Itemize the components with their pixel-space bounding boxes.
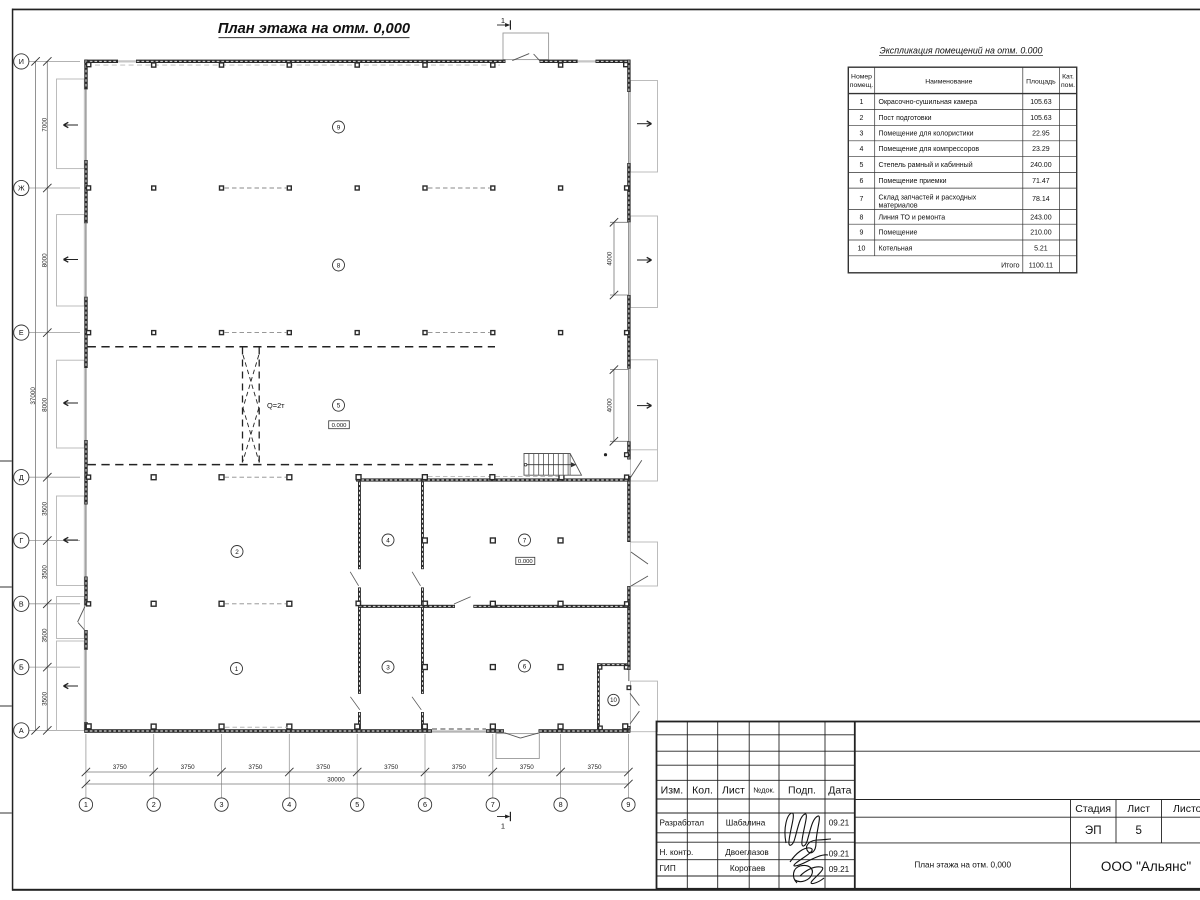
svg-text:78.14: 78.14	[1032, 196, 1050, 203]
svg-text:Степель рамный и кабинный: Степель рамный и кабинный	[879, 161, 973, 169]
svg-text:Котельная: Котельная	[879, 245, 913, 252]
svg-text:Разработал: Разработал	[660, 818, 705, 827]
svg-text:9: 9	[337, 124, 341, 131]
svg-text:Кол.: Кол.	[692, 785, 713, 797]
svg-text:7: 7	[523, 537, 527, 544]
svg-text:Наименование: Наименование	[925, 79, 972, 86]
svg-text:09.21: 09.21	[829, 850, 850, 859]
svg-text:8000: 8000	[42, 253, 49, 268]
svg-text:Помещение приемки: Помещение приемки	[879, 178, 947, 185]
svg-text:71.47: 71.47	[1032, 178, 1050, 185]
svg-text:Пост подготовки: Пост подготовки	[879, 115, 932, 122]
svg-text:Б: Б	[19, 663, 24, 672]
svg-text:9: 9	[860, 230, 864, 237]
svg-text:6: 6	[523, 663, 527, 670]
svg-text:3500: 3500	[42, 501, 49, 516]
svg-text:План этажа на отм. 0,000: План этажа на отм. 0,000	[914, 860, 1011, 869]
svg-text:Стадия: Стадия	[1075, 803, 1111, 815]
svg-text:4000: 4000	[607, 251, 614, 266]
svg-text:3750: 3750	[248, 764, 263, 771]
svg-text:3750: 3750	[181, 764, 196, 771]
svg-text:И: И	[19, 57, 24, 66]
svg-text:6: 6	[423, 800, 427, 809]
svg-text:ЭП: ЭП	[1085, 825, 1102, 837]
svg-text:Д: Д	[19, 473, 24, 482]
svg-text:5: 5	[337, 403, 341, 410]
svg-text:09.21: 09.21	[829, 865, 850, 874]
svg-text:3750: 3750	[113, 764, 128, 771]
svg-text:4000: 4000	[607, 398, 614, 413]
svg-text:10: 10	[610, 698, 617, 704]
svg-text:4: 4	[287, 800, 291, 809]
svg-text:4: 4	[860, 146, 864, 153]
svg-text:23.29: 23.29	[1032, 146, 1050, 153]
svg-text:В: В	[19, 599, 24, 608]
svg-text:Лист: Лист	[1127, 803, 1150, 815]
svg-text:3500: 3500	[42, 565, 49, 580]
svg-text:105.63: 105.63	[1030, 115, 1052, 122]
svg-text:8: 8	[860, 214, 864, 221]
svg-text:Е: Е	[19, 328, 24, 337]
svg-text:План этажа на отм. 0,000: План этажа на отм. 0,000	[218, 21, 411, 37]
svg-text:Помещение для компрессоров: Помещение для компрессоров	[879, 146, 980, 153]
svg-text:Изм.: Изм.	[661, 785, 684, 797]
svg-text:Дата: Дата	[828, 785, 851, 797]
svg-text:9: 9	[626, 800, 630, 809]
svg-text:Итого: Итого	[1001, 262, 1019, 269]
svg-text:ООО "Альянс": ООО "Альянс"	[1101, 859, 1191, 874]
svg-text:№док.: №док.	[753, 786, 774, 795]
svg-text:ГИП: ГИП	[660, 864, 676, 873]
svg-text:Лист: Лист	[722, 785, 745, 797]
svg-text:Ж: Ж	[18, 184, 25, 193]
svg-text:2: 2	[235, 549, 239, 556]
svg-text:Помещение для колористики: Помещение для колористики	[879, 131, 974, 138]
svg-text:Двоеглазов: Двоеглазов	[725, 848, 769, 857]
svg-text:пом.: пом.	[1061, 82, 1075, 89]
svg-text:1: 1	[860, 99, 864, 106]
svg-text:3500: 3500	[42, 628, 49, 643]
svg-text:10: 10	[858, 245, 866, 252]
svg-text:Г: Г	[19, 536, 23, 545]
svg-text:5: 5	[860, 162, 864, 169]
svg-text:7: 7	[491, 800, 495, 809]
svg-text:7000: 7000	[42, 117, 49, 132]
svg-text:5: 5	[1135, 825, 1141, 837]
svg-text:105.63: 105.63	[1030, 99, 1052, 106]
svg-text:Помещение: Помещение	[879, 230, 918, 237]
svg-text:Кат.: Кат.	[1062, 74, 1074, 81]
svg-text:Листов: Листов	[1173, 803, 1200, 815]
svg-text:Коротаев: Коротаев	[730, 864, 765, 873]
svg-text:8: 8	[559, 800, 563, 809]
svg-text:3: 3	[386, 664, 390, 671]
svg-text:3750: 3750	[316, 764, 331, 771]
svg-text:3500: 3500	[42, 691, 49, 706]
svg-text:2: 2	[860, 115, 864, 122]
svg-text:22.95: 22.95	[1032, 131, 1050, 138]
svg-text:7: 7	[860, 196, 864, 203]
svg-text:1: 1	[501, 822, 505, 831]
svg-text:09.21: 09.21	[829, 818, 850, 827]
svg-text:Линия ТО и ремонта: Линия ТО и ремонта	[879, 214, 946, 221]
svg-text:2: 2	[152, 800, 156, 809]
svg-text:Экспликация помещений на отм.: Экспликация помещений на отм. 0.000	[880, 45, 1043, 55]
svg-text:Склад запчастей и расходных: Склад запчастей и расходных	[879, 193, 977, 201]
svg-text:1: 1	[501, 16, 505, 25]
svg-text:Подп.: Подп.	[788, 785, 816, 797]
svg-text:Шабалина: Шабалина	[726, 818, 766, 827]
svg-text:Q=2т: Q=2т	[267, 401, 285, 410]
svg-text:4: 4	[386, 537, 390, 544]
svg-text:Н. контр.: Н. контр.	[660, 848, 694, 857]
svg-text:8000: 8000	[42, 397, 49, 412]
svg-text:1: 1	[84, 800, 88, 809]
svg-text:3: 3	[220, 800, 224, 809]
svg-text:Площадь: Площадь	[1026, 79, 1056, 86]
svg-text:5: 5	[355, 800, 359, 809]
svg-text:1: 1	[235, 666, 239, 673]
svg-text:Номер: Номер	[851, 74, 872, 81]
svg-text:3750: 3750	[452, 764, 467, 771]
svg-text:30000: 30000	[327, 776, 345, 783]
svg-text:37000: 37000	[30, 387, 37, 405]
svg-text:А: А	[19, 726, 24, 735]
svg-text:3750: 3750	[520, 764, 535, 771]
svg-text:240.00: 240.00	[1030, 162, 1052, 169]
svg-text:5.21: 5.21	[1034, 245, 1048, 252]
svg-text:210.00: 210.00	[1030, 230, 1052, 237]
svg-text:3750: 3750	[587, 764, 602, 771]
svg-text:0.000: 0.000	[518, 559, 533, 565]
svg-text:материалов: материалов	[879, 202, 918, 209]
svg-text:3750: 3750	[384, 764, 399, 771]
svg-text:243.00: 243.00	[1030, 214, 1052, 221]
svg-text:3: 3	[860, 131, 864, 138]
svg-text:8: 8	[337, 262, 341, 269]
svg-text:0.000: 0.000	[332, 423, 347, 429]
svg-text:1100.11: 1100.11	[1029, 262, 1053, 269]
svg-text:Окрасочно-сушильная камера: Окрасочно-сушильная камера	[879, 99, 978, 106]
svg-text:6: 6	[860, 178, 864, 185]
svg-text:помещ.: помещ.	[850, 82, 874, 89]
